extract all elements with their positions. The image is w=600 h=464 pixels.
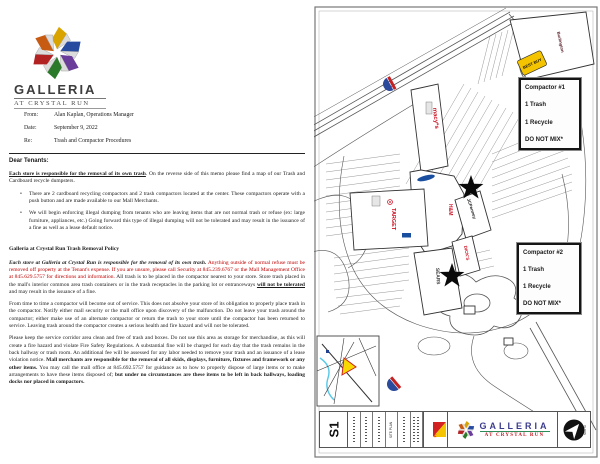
from-row: From: Alan Kaplan, Operations Manager	[24, 109, 134, 122]
sheet-number-cell: S1	[320, 412, 348, 447]
titleblock-logo-name: GALLERIA	[480, 421, 550, 432]
compactor1-trash: 1 Trash	[525, 102, 575, 108]
logo-name: GALLERIA	[14, 82, 106, 99]
building-target	[350, 189, 428, 250]
target-bullseye-dot	[389, 201, 391, 203]
from-value: Alan Kaplan, Operations Manager	[54, 109, 134, 122]
revision-cell	[398, 412, 411, 447]
revision-columns: SITE PLAN	[348, 412, 424, 447]
notes-cell	[411, 412, 424, 447]
titleblock-logo-tagline: AT CRYSTAL RUN	[480, 433, 550, 438]
site-plan-page: macy*s TARGET H&M JCPenney DICK'S SEARS …	[314, 6, 598, 458]
compactor1-recycle: 1 Recycle	[525, 120, 575, 126]
compactor1-title: Compactor #1	[525, 85, 575, 91]
drawing-title-cell: SITE PLAN	[386, 412, 399, 447]
date-row: Date: September 9, 2022	[24, 122, 134, 135]
salutation: Dear Tenants:	[9, 158, 305, 166]
compactor2-callout: Compactor #2 1 Trash 1 Recycle DO NOT MI…	[517, 243, 581, 314]
policy-paragraph: Each store at Galleria at Crystal Run is…	[9, 260, 305, 297]
sheet-number: S1	[326, 422, 341, 438]
out-of-service-paragraph: From time to time a compactor will becom…	[9, 301, 305, 330]
policy-lead: Each store at Galleria at Crystal Run is…	[9, 260, 206, 266]
rooftop-unit	[372, 196, 380, 206]
galleria-pinwheel-icon	[28, 24, 86, 82]
document-spread: GALLERIA AT CRYSTAL RUN From: Alan Kapla…	[0, 0, 600, 464]
policy-body2: and may result in the issuance of a fine…	[9, 289, 96, 295]
galleria-pinwheel-icon	[456, 420, 476, 440]
corridor-paragraph: Please keep the service corridor area cl…	[9, 335, 305, 386]
memo-body: Dear Tenants: Each store is responsible …	[9, 158, 305, 392]
bullet-item-illegal-dumping: We will begin enforcing illegal dumping …	[29, 210, 305, 232]
inset-blue-marker	[326, 350, 329, 353]
re-label: Re:	[24, 135, 54, 148]
compactor2-title: Compactor #2	[523, 250, 575, 256]
from-label: From:	[24, 109, 54, 122]
titleblock-galleria-logo: GALLERIA AT CRYSTAL RUN	[448, 412, 558, 447]
bullet-item-compactors: There are 2 cardboard recycling compacto…	[29, 191, 305, 206]
date-value: September 9, 2022	[54, 122, 98, 135]
compactor1-callout: Compactor #1 1 Trash 1 Recycle DO NOT MI…	[519, 78, 581, 150]
hm-label: H&M	[447, 204, 453, 215]
blue-store-label	[402, 233, 411, 238]
compactor2-trash: 1 Trash	[523, 267, 575, 273]
re-value: Trash and Compactor Procedures	[54, 135, 131, 148]
pyramid-label: PYRAMID	[433, 422, 437, 437]
revision-cell	[348, 412, 361, 447]
header-divider	[9, 153, 305, 154]
north-arrow-cell: NORTH	[558, 412, 590, 447]
target-label: TARGET	[390, 208, 396, 231]
re-row: Re: Trash and Compactor Procedures	[24, 135, 134, 148]
drawing-title: SITE PLAN	[389, 421, 393, 437]
inset-locator-map	[317, 336, 379, 406]
outparcel-building	[504, 338, 513, 345]
galleria-logo: GALLERIA AT CRYSTAL RUN	[14, 24, 134, 109]
compactor2-recycle: 1 Recycle	[523, 284, 575, 290]
sears-label: SEARS	[434, 268, 441, 286]
revision-cell	[373, 412, 386, 447]
revision-cell	[361, 412, 374, 447]
date-label: Date:	[24, 122, 54, 135]
policy-heading: Galleria at Crystal Run Trash Removal Po…	[9, 246, 305, 253]
compactor2-warning: DO NOT MIX*	[523, 301, 575, 307]
compactor1-warning: DO NOT MIX*	[525, 137, 575, 143]
intro-bold: Each store is responsible for the remova…	[9, 171, 146, 177]
bullet-list: There are 2 cardboard recycling compacto…	[9, 191, 305, 233]
pyramid-logo-cell: PYRAMID	[424, 412, 448, 447]
drawing-titleblock: S1 SITE PLAN PYRAMID	[319, 411, 591, 448]
policy-bold-underline: will not be tolerated	[257, 282, 305, 288]
site-plan-drawing: macy*s TARGET H&M JCPenney DICK'S SEARS …	[314, 6, 598, 458]
logo-tagline: AT CRYSTAL RUN	[14, 99, 106, 109]
intro-paragraph: Each store is responsible for the remova…	[9, 171, 305, 186]
outparcel-building	[464, 306, 475, 314]
north-label: NORTH	[583, 425, 587, 435]
memo-header-fields: From: Alan Kaplan, Operations Manager Da…	[24, 109, 134, 148]
